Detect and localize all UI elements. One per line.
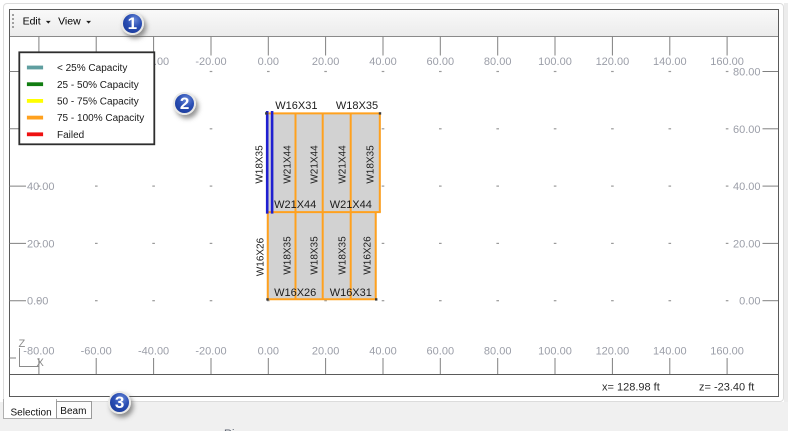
svg-text:x= 128.98 ft: x= 128.98 ft (602, 382, 660, 394)
svg-text:W16X26: W16X26 (362, 236, 373, 275)
svg-text:-60.00: -60.00 (81, 346, 112, 358)
svg-text:< 25% Capacity: < 25% Capacity (57, 63, 127, 74)
svg-text:140.00: 140.00 (653, 56, 687, 68)
svg-text:50 - 75% Capacity: 50 - 75% Capacity (57, 97, 139, 108)
svg-text:20.00: 20.00 (27, 238, 55, 250)
svg-text:W16X26: W16X26 (255, 237, 266, 276)
svg-text:120.00: 120.00 (596, 346, 630, 358)
svg-text:W16X31: W16X31 (275, 100, 317, 112)
svg-text:W21X44: W21X44 (330, 199, 372, 211)
svg-text:120.00: 120.00 (596, 56, 630, 68)
svg-text:Edit: Edit (23, 16, 41, 28)
svg-text:20.00: 20.00 (312, 56, 340, 68)
svg-text:W18X35: W18X35 (336, 100, 378, 112)
svg-text:20.00: 20.00 (312, 346, 340, 358)
svg-text:W18X35: W18X35 (337, 236, 348, 275)
svg-text:Failed: Failed (57, 130, 84, 141)
svg-text:Z: Z (19, 338, 26, 350)
svg-text:0.00: 0.00 (258, 346, 279, 358)
svg-text:W21X44: W21X44 (337, 145, 348, 184)
svg-text:0.00: 0.00 (258, 56, 279, 68)
svg-text:X: X (37, 357, 45, 369)
svg-text:40.00: 40.00 (369, 56, 397, 68)
svg-text:W16X31: W16X31 (330, 287, 372, 299)
svg-text:40.00: 40.00 (733, 181, 761, 193)
svg-text:25 - 50% Capacity: 25 - 50% Capacity (57, 80, 139, 91)
svg-text:0.00: 0.00 (27, 296, 48, 308)
svg-text:60.00: 60.00 (733, 124, 761, 136)
svg-text:80.00: 80.00 (733, 67, 761, 79)
svg-text:W16X26: W16X26 (274, 287, 316, 299)
svg-text:-20.00: -20.00 (195, 346, 226, 358)
svg-text:40.00: 40.00 (369, 346, 397, 358)
svg-text:-40.00: -40.00 (138, 346, 169, 358)
svg-text:60.00: 60.00 (427, 346, 455, 358)
svg-text:20.00: 20.00 (733, 238, 761, 250)
svg-text:140.00: 140.00 (653, 346, 687, 358)
svg-text:W21X44: W21X44 (282, 145, 293, 184)
svg-text:100.00: 100.00 (538, 346, 572, 358)
svg-text:Beam: Beam (60, 406, 86, 417)
svg-text:W18X35: W18X35 (365, 145, 376, 184)
svg-text:W21X44: W21X44 (274, 199, 316, 211)
svg-text:View: View (58, 16, 81, 28)
svg-text:W18X35: W18X35 (282, 236, 293, 275)
svg-text:-20.00: -20.00 (195, 56, 226, 68)
svg-text:100.00: 100.00 (538, 56, 572, 68)
svg-text:-80.00: -80.00 (23, 346, 54, 358)
svg-text:W21X44: W21X44 (309, 145, 320, 184)
svg-text:Selection: Selection (11, 407, 52, 418)
svg-text:60.00: 60.00 (427, 56, 455, 68)
svg-text:80.00: 80.00 (484, 346, 512, 358)
svg-text:W18X35: W18X35 (254, 145, 265, 184)
svg-text:W18X35: W18X35 (309, 236, 320, 275)
svg-text:0.00: 0.00 (739, 296, 760, 308)
svg-text:40.00: 40.00 (27, 181, 55, 193)
svg-text:80.00: 80.00 (484, 56, 512, 68)
svg-text:z= -23.40 ft: z= -23.40 ft (699, 382, 754, 394)
svg-text:75 - 100% Capacity: 75 - 100% Capacity (57, 113, 144, 124)
svg-text:160.00: 160.00 (710, 346, 744, 358)
